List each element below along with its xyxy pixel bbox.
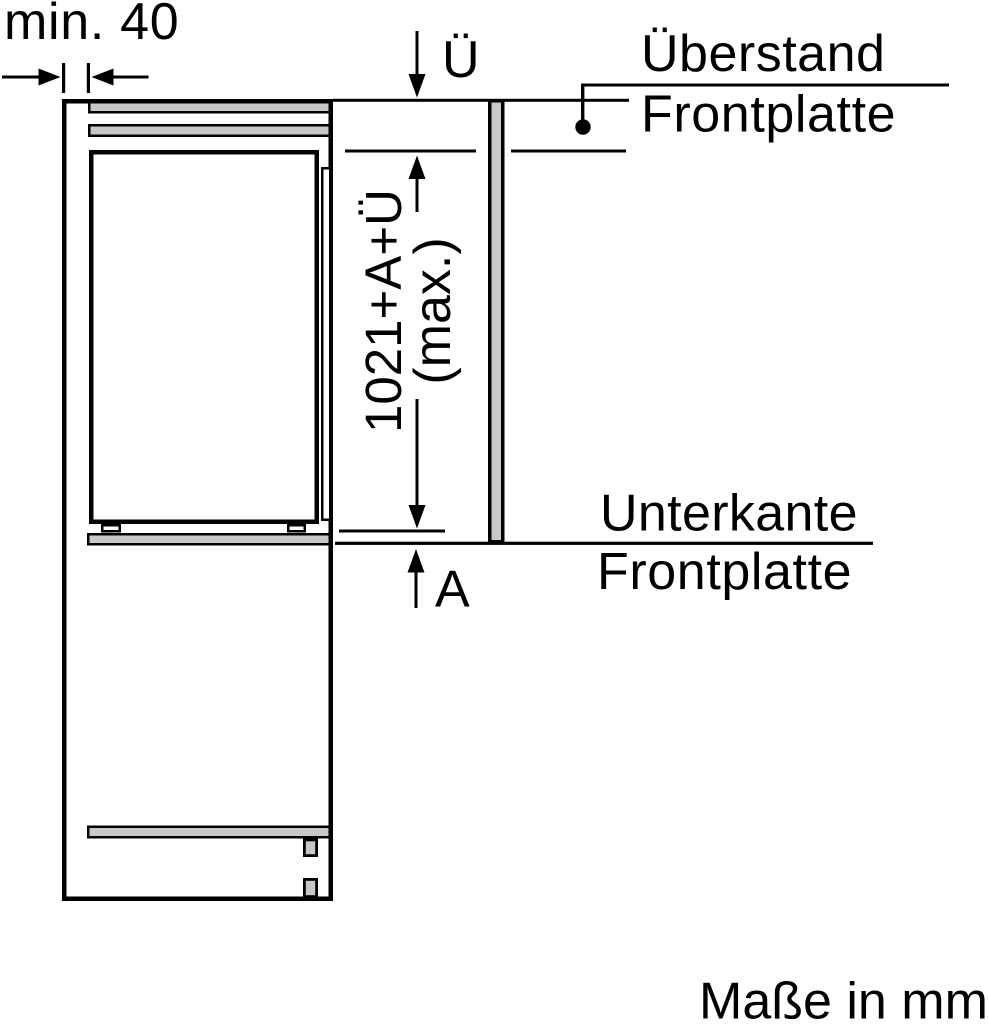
svg-text:Überstand: Überstand [641, 25, 885, 83]
svg-text:Maße in mm: Maße in mm [699, 973, 988, 1024]
svg-text:Frontplatte: Frontplatte [641, 86, 896, 144]
svg-text:A: A [435, 561, 470, 619]
svg-text:Frontplatte: Frontplatte [597, 543, 852, 601]
svg-text:(max.): (max.) [404, 237, 462, 384]
svg-text:Unterkante: Unterkante [600, 485, 858, 543]
svg-text:Ü: Ü [442, 31, 480, 89]
svg-text:min. 40: min. 40 [4, 0, 179, 51]
